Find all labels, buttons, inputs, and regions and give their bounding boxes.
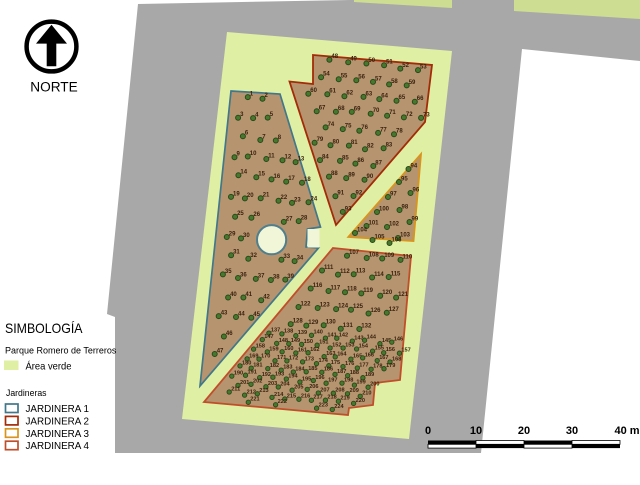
- svg-text:14: 14: [240, 170, 247, 176]
- svg-text:160: 160: [284, 346, 293, 352]
- svg-text:94: 94: [411, 163, 418, 169]
- svg-text:72: 72: [406, 112, 413, 118]
- svg-text:Parque Romero de Terreros: Parque Romero de Terreros: [5, 346, 117, 356]
- svg-text:180: 180: [242, 360, 251, 366]
- svg-text:210: 210: [362, 391, 371, 397]
- svg-text:53: 53: [420, 65, 427, 71]
- svg-text:212: 212: [247, 390, 256, 396]
- svg-text:142: 142: [339, 333, 348, 339]
- svg-text:57: 57: [375, 76, 382, 82]
- svg-text:95: 95: [401, 176, 408, 182]
- svg-text:224: 224: [334, 404, 344, 410]
- svg-text:98: 98: [402, 204, 409, 210]
- svg-text:Jardineras: Jardineras: [6, 388, 47, 398]
- svg-text:25: 25: [237, 211, 244, 217]
- svg-text:27: 27: [286, 216, 293, 222]
- svg-text:104: 104: [357, 227, 368, 233]
- svg-text:70: 70: [373, 108, 380, 114]
- svg-text:223: 223: [319, 403, 328, 409]
- svg-text:89: 89: [348, 173, 355, 179]
- svg-text:201: 201: [240, 380, 249, 386]
- svg-text:97: 97: [390, 191, 397, 197]
- svg-text:83: 83: [386, 143, 393, 149]
- svg-text:62: 62: [346, 91, 353, 97]
- svg-text:40 m: 40 m: [614, 425, 639, 437]
- svg-text:JARDINERA 2: JARDINERA 2: [26, 416, 90, 427]
- svg-text:73: 73: [423, 112, 430, 118]
- svg-text:11: 11: [268, 153, 275, 159]
- svg-text:115: 115: [391, 271, 401, 277]
- svg-text:64: 64: [381, 94, 388, 100]
- svg-text:99: 99: [412, 216, 419, 222]
- svg-text:32: 32: [250, 253, 257, 259]
- svg-text:JARDINERA 3: JARDINERA 3: [26, 429, 90, 440]
- svg-text:157: 157: [401, 348, 410, 354]
- svg-text:74: 74: [328, 122, 335, 128]
- svg-text:126: 126: [371, 308, 382, 314]
- svg-text:159: 159: [269, 346, 278, 352]
- svg-text:174: 174: [319, 358, 329, 364]
- svg-text:125: 125: [353, 304, 364, 310]
- svg-text:138: 138: [284, 328, 293, 334]
- svg-text:109: 109: [384, 253, 395, 259]
- svg-text:179: 179: [386, 363, 395, 369]
- svg-text:195: 195: [302, 376, 311, 382]
- svg-text:15: 15: [258, 172, 265, 178]
- svg-text:SIMBOLOGÍA: SIMBOLOGÍA: [5, 320, 83, 336]
- svg-text:67: 67: [319, 106, 326, 112]
- svg-text:214: 214: [274, 392, 284, 398]
- svg-text:93: 93: [345, 206, 352, 212]
- svg-text:55: 55: [341, 74, 348, 80]
- svg-text:168: 168: [392, 356, 401, 362]
- svg-text:18: 18: [304, 177, 311, 183]
- svg-text:172: 172: [289, 355, 298, 361]
- svg-text:110: 110: [403, 254, 413, 260]
- svg-text:51: 51: [386, 60, 393, 66]
- svg-text:42: 42: [263, 295, 270, 301]
- svg-text:24: 24: [311, 197, 318, 203]
- svg-text:16: 16: [274, 174, 281, 180]
- svg-text:205: 205: [294, 385, 303, 391]
- svg-text:28: 28: [301, 216, 308, 222]
- svg-text:91: 91: [337, 191, 344, 197]
- svg-text:38: 38: [273, 274, 280, 280]
- svg-text:50: 50: [368, 58, 375, 64]
- svg-text:154: 154: [359, 343, 369, 349]
- svg-text:105: 105: [375, 234, 386, 240]
- svg-text:Área verde: Área verde: [26, 360, 72, 373]
- svg-text:90: 90: [367, 174, 374, 180]
- svg-text:84: 84: [322, 155, 329, 161]
- svg-text:222: 222: [278, 399, 287, 405]
- svg-text:103: 103: [400, 232, 411, 238]
- svg-text:206: 206: [309, 384, 318, 390]
- svg-text:23: 23: [294, 197, 301, 203]
- svg-text:192: 192: [262, 372, 271, 378]
- svg-text:76: 76: [361, 125, 368, 131]
- svg-text:140: 140: [314, 330, 323, 336]
- svg-text:144: 144: [367, 335, 377, 341]
- svg-text:217: 217: [313, 395, 322, 401]
- svg-text:44: 44: [238, 311, 245, 317]
- svg-text:60: 60: [310, 88, 317, 94]
- svg-text:123: 123: [320, 302, 331, 308]
- svg-text:78: 78: [396, 129, 403, 135]
- svg-text:131: 131: [343, 323, 354, 329]
- svg-text:183: 183: [283, 365, 292, 371]
- svg-text:118: 118: [347, 287, 357, 293]
- svg-text:173: 173: [305, 356, 314, 362]
- svg-text:196: 196: [315, 375, 324, 381]
- svg-text:41: 41: [245, 292, 252, 298]
- svg-text:167: 167: [379, 355, 388, 361]
- svg-text:204: 204: [280, 381, 290, 387]
- svg-text:175: 175: [331, 360, 340, 366]
- svg-text:130: 130: [326, 320, 337, 326]
- svg-text:68: 68: [338, 106, 345, 112]
- svg-text:139: 139: [298, 330, 307, 336]
- svg-text:117: 117: [331, 285, 341, 291]
- svg-text:31: 31: [233, 250, 240, 256]
- svg-text:66: 66: [417, 96, 424, 102]
- svg-text:121: 121: [398, 292, 409, 298]
- svg-text:30: 30: [243, 233, 250, 239]
- svg-text:189: 189: [365, 372, 374, 378]
- svg-text:100: 100: [379, 206, 390, 212]
- svg-text:85: 85: [342, 155, 349, 161]
- svg-text:191: 191: [248, 370, 257, 376]
- svg-text:153: 153: [345, 342, 354, 348]
- svg-text:218: 218: [327, 395, 336, 401]
- svg-text:198: 198: [344, 378, 353, 384]
- svg-text:209: 209: [350, 388, 359, 394]
- svg-text:107: 107: [349, 250, 360, 256]
- svg-text:59: 59: [409, 80, 416, 86]
- svg-text:219: 219: [340, 396, 349, 402]
- svg-text:20: 20: [518, 425, 530, 437]
- svg-text:199: 199: [356, 380, 365, 386]
- svg-text:146: 146: [394, 337, 403, 343]
- svg-text:45: 45: [253, 312, 260, 318]
- svg-text:127: 127: [389, 307, 400, 313]
- svg-text:43: 43: [221, 311, 228, 317]
- svg-text:211: 211: [231, 386, 240, 392]
- svg-text:119: 119: [363, 288, 373, 294]
- svg-text:34: 34: [297, 256, 304, 262]
- svg-text:129: 129: [308, 320, 319, 326]
- svg-text:75: 75: [345, 124, 352, 130]
- svg-text:82: 82: [367, 144, 374, 150]
- svg-text:114: 114: [374, 272, 384, 278]
- svg-text:181: 181: [253, 363, 262, 369]
- svg-text:65: 65: [399, 95, 406, 101]
- svg-text:215: 215: [287, 393, 296, 399]
- svg-text:158: 158: [256, 344, 265, 350]
- svg-text:106: 106: [392, 237, 403, 243]
- svg-text:102: 102: [389, 221, 400, 227]
- svg-text:17: 17: [288, 176, 295, 182]
- svg-text:13: 13: [298, 157, 305, 163]
- svg-text:147: 147: [264, 334, 273, 340]
- svg-text:182: 182: [270, 363, 279, 369]
- svg-text:29: 29: [229, 231, 236, 237]
- svg-text:10: 10: [250, 151, 257, 157]
- svg-text:26: 26: [253, 212, 260, 218]
- svg-text:JARDINERA 1: JARDINERA 1: [26, 404, 90, 415]
- svg-text:86: 86: [357, 158, 364, 164]
- svg-text:185: 185: [308, 366, 317, 372]
- svg-text:30: 30: [566, 425, 578, 437]
- svg-text:177: 177: [359, 362, 368, 368]
- svg-text:63: 63: [366, 91, 373, 97]
- svg-text:221: 221: [250, 397, 259, 403]
- svg-text:NORTE: NORTE: [30, 80, 78, 95]
- svg-text:46: 46: [226, 331, 233, 337]
- svg-text:47: 47: [217, 348, 224, 354]
- svg-text:101: 101: [369, 220, 380, 226]
- svg-text:137: 137: [271, 328, 280, 334]
- svg-text:200: 200: [370, 382, 379, 388]
- svg-text:156: 156: [386, 347, 395, 353]
- svg-text:207: 207: [320, 387, 329, 393]
- svg-text:188: 188: [350, 370, 359, 376]
- svg-text:197: 197: [328, 378, 337, 384]
- svg-text:80: 80: [333, 140, 340, 146]
- svg-text:21: 21: [263, 193, 270, 199]
- svg-text:22: 22: [281, 195, 288, 201]
- svg-text:81: 81: [351, 140, 358, 146]
- svg-text:190: 190: [234, 371, 243, 377]
- svg-text:208: 208: [335, 388, 344, 394]
- svg-text:112: 112: [340, 269, 350, 275]
- svg-text:150: 150: [304, 339, 313, 345]
- svg-text:87: 87: [375, 160, 382, 166]
- svg-text:152: 152: [332, 342, 341, 348]
- svg-text:187: 187: [337, 369, 346, 375]
- svg-text:162: 162: [310, 347, 319, 353]
- svg-text:77: 77: [380, 127, 387, 133]
- svg-text:170: 170: [261, 354, 270, 360]
- svg-text:220: 220: [356, 398, 365, 404]
- svg-text:39: 39: [287, 274, 294, 280]
- svg-text:194: 194: [288, 373, 298, 379]
- svg-text:120: 120: [382, 290, 393, 296]
- svg-text:20: 20: [247, 193, 254, 199]
- svg-text:52: 52: [402, 63, 409, 69]
- svg-text:108: 108: [369, 252, 380, 258]
- svg-text:116: 116: [313, 283, 323, 289]
- svg-text:69: 69: [354, 106, 361, 112]
- svg-text:132: 132: [361, 323, 372, 329]
- svg-text:79: 79: [317, 137, 324, 143]
- svg-text:19: 19: [233, 191, 240, 197]
- svg-text:124: 124: [338, 304, 349, 310]
- svg-text:213: 213: [259, 388, 268, 394]
- svg-text:92: 92: [356, 190, 363, 196]
- svg-text:164: 164: [337, 351, 347, 357]
- svg-text:202: 202: [253, 379, 262, 385]
- svg-text:61: 61: [329, 89, 336, 95]
- svg-text:111: 111: [324, 265, 334, 271]
- svg-text:151: 151: [319, 340, 328, 346]
- svg-text:71: 71: [389, 110, 396, 116]
- svg-text:88: 88: [331, 171, 338, 177]
- svg-text:37: 37: [258, 273, 265, 279]
- svg-text:36: 36: [240, 272, 247, 278]
- svg-text:0: 0: [425, 425, 431, 437]
- svg-text:58: 58: [391, 79, 398, 85]
- svg-text:113: 113: [356, 269, 366, 275]
- svg-text:122: 122: [301, 301, 312, 307]
- svg-text:193: 193: [275, 372, 284, 378]
- svg-text:40: 40: [230, 292, 237, 298]
- svg-text:149: 149: [291, 338, 300, 344]
- svg-text:48: 48: [331, 54, 338, 60]
- svg-text:96: 96: [413, 187, 420, 193]
- svg-text:54: 54: [323, 72, 330, 78]
- svg-text:12: 12: [285, 155, 292, 161]
- svg-text:35: 35: [225, 269, 232, 275]
- svg-text:56: 56: [358, 75, 365, 81]
- svg-text:216: 216: [301, 394, 310, 400]
- svg-text:166: 166: [365, 352, 374, 358]
- svg-text:33: 33: [283, 254, 290, 260]
- svg-text:178: 178: [373, 364, 382, 370]
- svg-text:186: 186: [324, 367, 333, 373]
- svg-text:JARDINERA 4: JARDINERA 4: [26, 441, 90, 452]
- svg-text:128: 128: [293, 319, 304, 325]
- svg-text:176: 176: [345, 361, 354, 367]
- svg-text:10: 10: [470, 425, 482, 437]
- svg-text:49: 49: [350, 57, 357, 63]
